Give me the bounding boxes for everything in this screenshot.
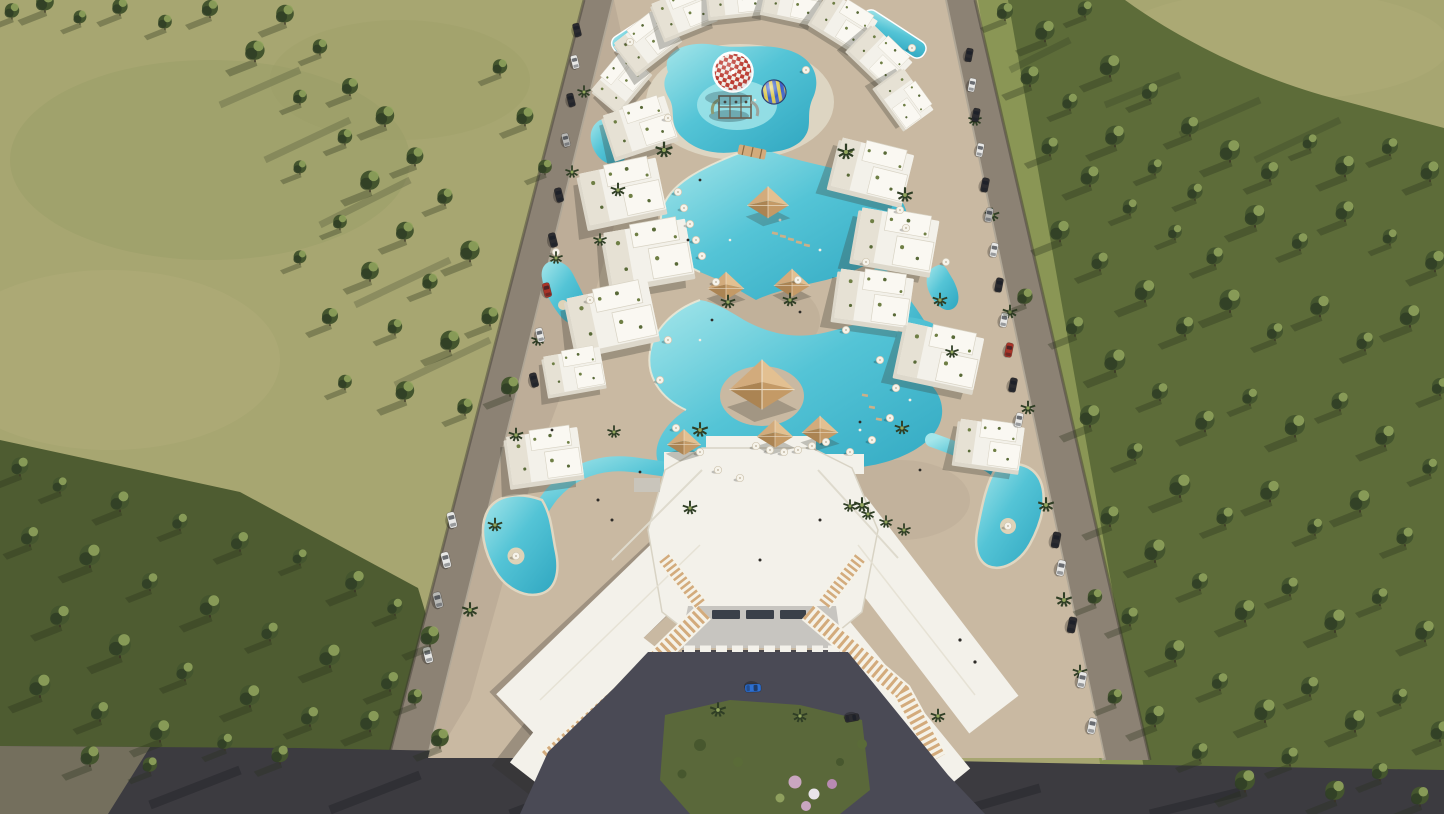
- clubhouse-main-roof: [648, 448, 878, 630]
- play-ball: [762, 80, 786, 104]
- clerestory-windows: [712, 610, 806, 619]
- lawn-island: [660, 700, 870, 814]
- aerial-resort-render: [0, 0, 1444, 814]
- render-frame: [0, 0, 1444, 814]
